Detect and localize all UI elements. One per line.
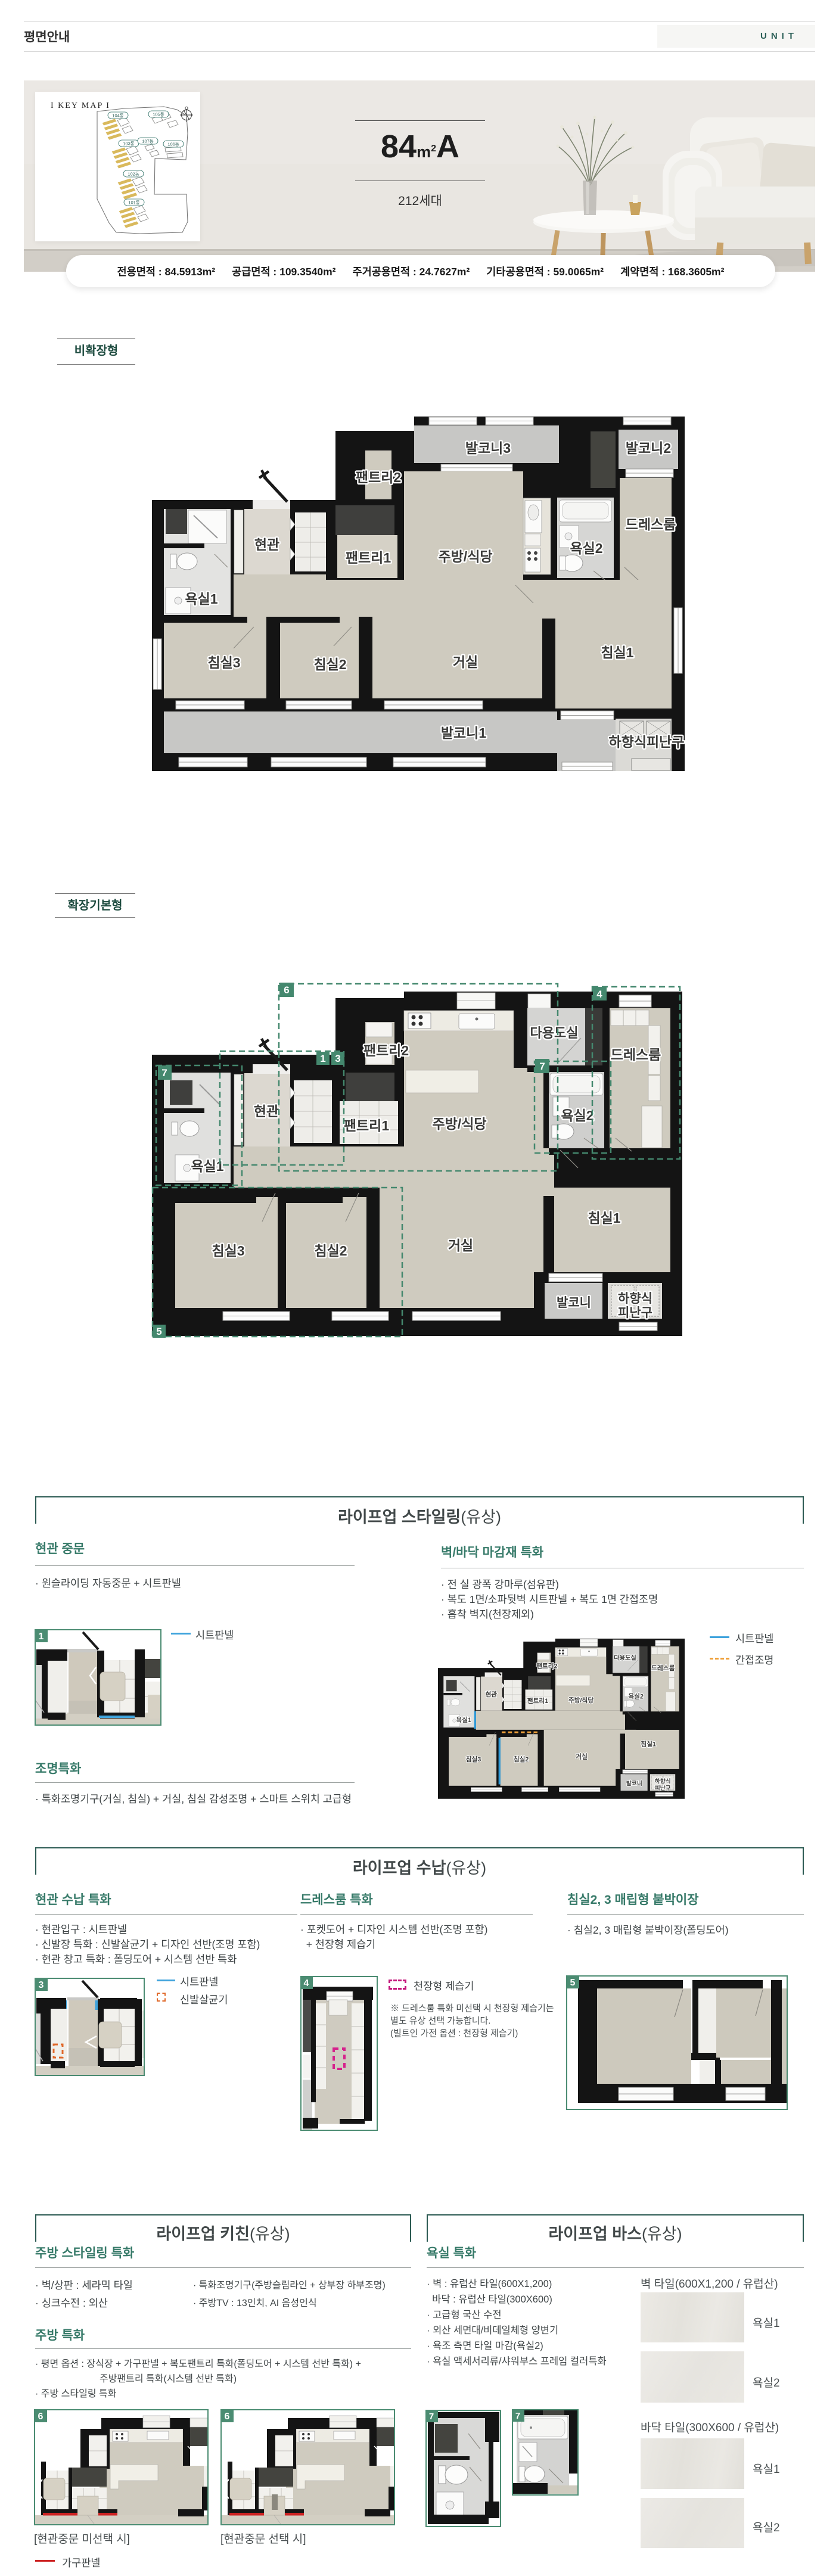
svg-text:4: 4 (304, 1978, 309, 1988)
svg-text:팬트리1: 팬트리1 (346, 550, 391, 565)
svg-text:팬트리2: 팬트리2 (363, 1043, 409, 1058)
svg-text:102동: 102동 (128, 172, 139, 177)
svg-text:현관: 현관 (254, 537, 279, 552)
svg-text:현관: 현관 (254, 1104, 279, 1119)
svg-text:피난구: 피난구 (618, 1306, 652, 1320)
svg-text:하향식피난구: 하향식피난구 (609, 734, 685, 750)
svg-text:침실3: 침실3 (212, 1243, 244, 1259)
svg-text:다용도실: 다용도실 (530, 1026, 579, 1040)
svg-text:발코니: 발코니 (557, 1296, 591, 1310)
svg-text:3: 3 (335, 1053, 340, 1064)
svg-text:하향식: 하향식 (618, 1291, 652, 1306)
svg-text:6: 6 (225, 2412, 230, 2422)
svg-text:침실2: 침실2 (314, 1243, 347, 1259)
svg-text:침실2: 침실2 (313, 657, 346, 672)
svg-text:욕실1: 욕실1 (185, 591, 217, 607)
svg-text:1: 1 (320, 1053, 325, 1064)
svg-text:욕실1: 욕실1 (191, 1158, 223, 1174)
svg-text:발코니1: 발코니1 (441, 725, 486, 741)
svg-text:거실: 거실 (453, 654, 478, 670)
svg-text:3: 3 (39, 1980, 44, 1990)
svg-text:107동: 107동 (142, 139, 154, 144)
svg-text:발코니2: 발코니2 (626, 440, 671, 456)
svg-text:101동: 101동 (128, 200, 140, 206)
svg-text:팬트리2: 팬트리2 (356, 470, 401, 485)
svg-text:7: 7 (161, 1067, 167, 1079)
svg-text:발코니3: 발코니3 (465, 440, 511, 456)
svg-text:5: 5 (156, 1326, 161, 1337)
svg-text:팬트리1: 팬트리1 (344, 1118, 389, 1133)
svg-text:4: 4 (596, 989, 602, 1000)
svg-text:주방/식당: 주방/식당 (432, 1116, 486, 1132)
svg-text:103동: 103동 (123, 141, 135, 147)
svg-text:드레스룸: 드레스룸 (626, 517, 676, 532)
svg-text:욕실2: 욕실2 (570, 540, 602, 556)
svg-text:침실3: 침실3 (207, 655, 240, 670)
svg-text:104동: 104동 (112, 113, 124, 119)
svg-text:7: 7 (539, 1061, 545, 1072)
svg-text:드레스룸: 드레스룸 (611, 1047, 661, 1062)
svg-text:1: 1 (39, 1632, 44, 1642)
svg-text:7: 7 (429, 2412, 434, 2422)
svg-text:주방/식당: 주방/식당 (438, 549, 492, 564)
svg-text:6: 6 (284, 984, 289, 996)
svg-text:5: 5 (570, 1978, 576, 1988)
svg-text:6: 6 (38, 2412, 43, 2422)
svg-text:욕실2: 욕실2 (561, 1108, 593, 1123)
svg-text:105동: 105동 (153, 112, 164, 117)
svg-text:거실: 거실 (448, 1238, 473, 1253)
svg-text:침실1: 침실1 (601, 645, 633, 660)
svg-text:106동: 106동 (167, 142, 179, 147)
svg-text:7: 7 (515, 2411, 520, 2421)
svg-text:침실1: 침실1 (588, 1210, 620, 1226)
